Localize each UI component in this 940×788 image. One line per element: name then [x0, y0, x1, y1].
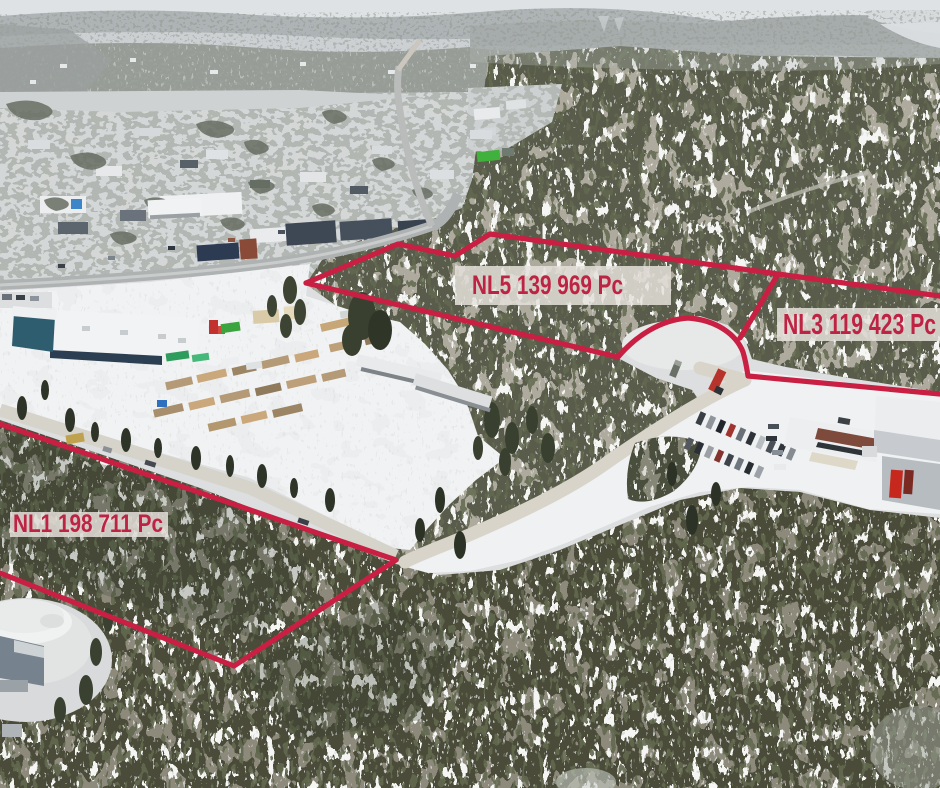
svg-text:NL5 139 969 Pc: NL5 139 969 Pc — [472, 270, 623, 300]
svg-text:NL1 198 711 Pc: NL1 198 711 Pc — [13, 510, 163, 538]
svg-text:NL3 119 423 Pc: NL3 119 423 Pc — [783, 309, 936, 341]
